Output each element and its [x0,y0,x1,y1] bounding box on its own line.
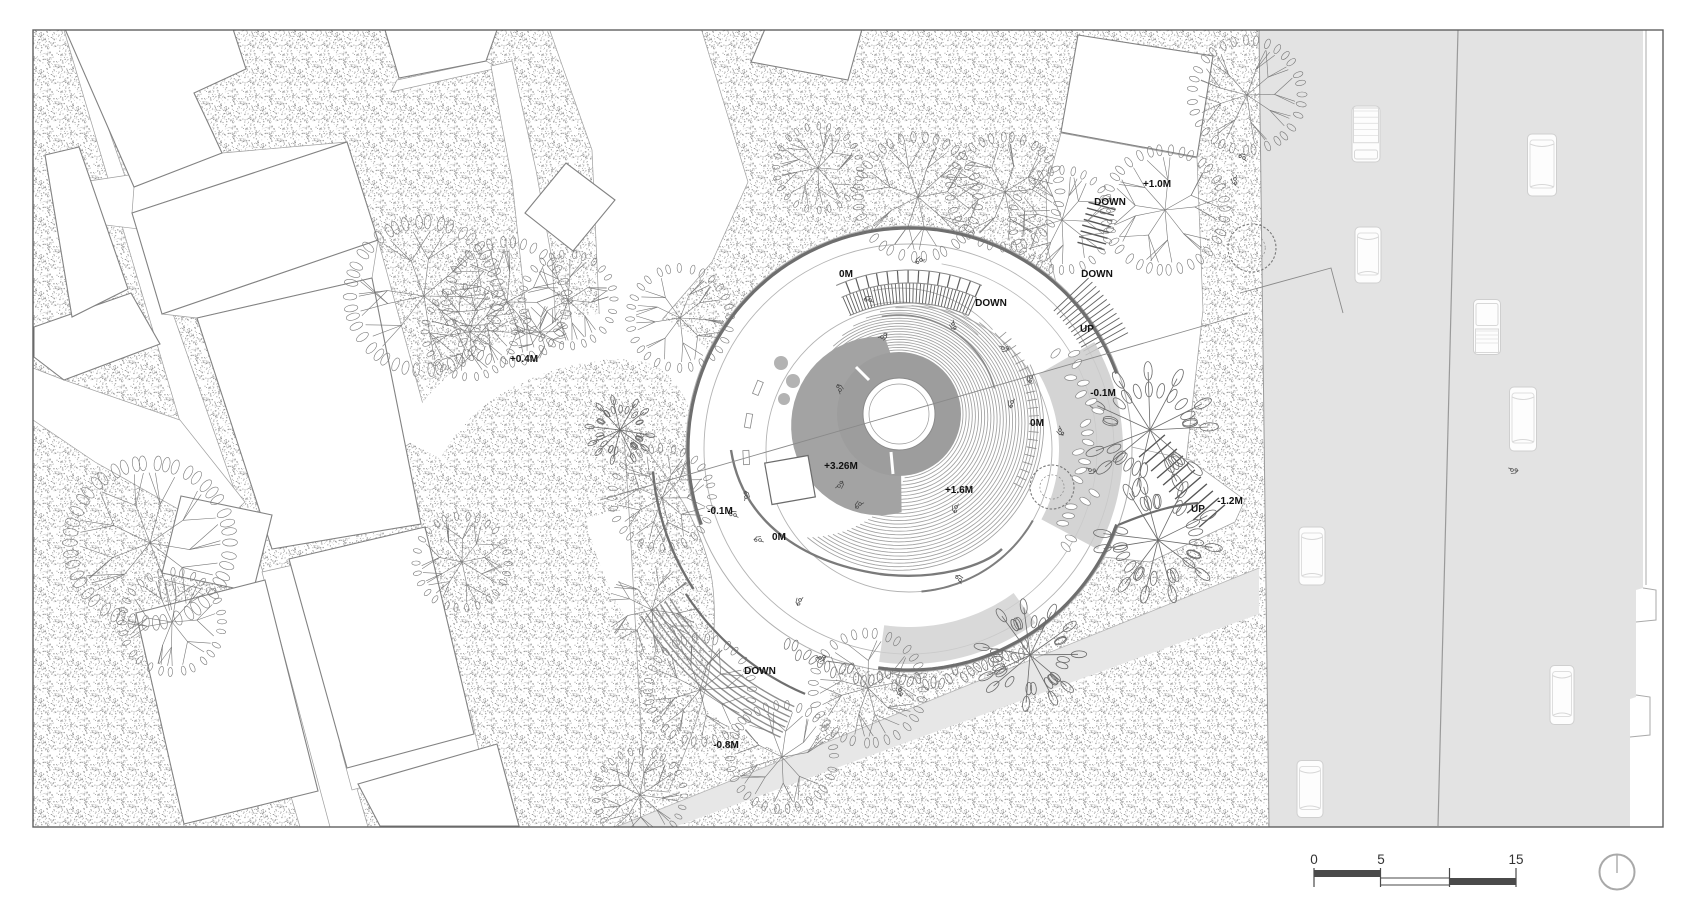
svg-text:UP: UP [1191,504,1205,515]
svg-text:0: 0 [1310,852,1318,867]
svg-text:-0.8M: -0.8M [713,740,739,751]
svg-text:0M: 0M [839,269,853,280]
svg-text:UP: UP [1080,324,1094,335]
svg-text:5: 5 [1377,852,1385,867]
svg-text:-0.1M: -0.1M [1090,388,1116,399]
svg-text:DOWN: DOWN [1094,197,1126,208]
svg-text:0M: 0M [772,532,786,543]
svg-text:+1.6M: +1.6M [945,485,973,496]
svg-text:+3.26M: +3.26M [824,461,858,472]
svg-text:+1.0M: +1.0M [1143,179,1171,190]
svg-text:DOWN: DOWN [975,298,1007,309]
svg-text:-0.1M: -0.1M [707,506,733,517]
svg-text:DOWN: DOWN [1081,269,1113,280]
svg-text:DOWN: DOWN [744,666,776,677]
svg-text:15: 15 [1508,852,1523,867]
svg-text:0M: 0M [1030,418,1044,429]
svg-text:+0.4M: +0.4M [510,354,538,365]
svg-text:-1.2M: -1.2M [1217,496,1243,507]
